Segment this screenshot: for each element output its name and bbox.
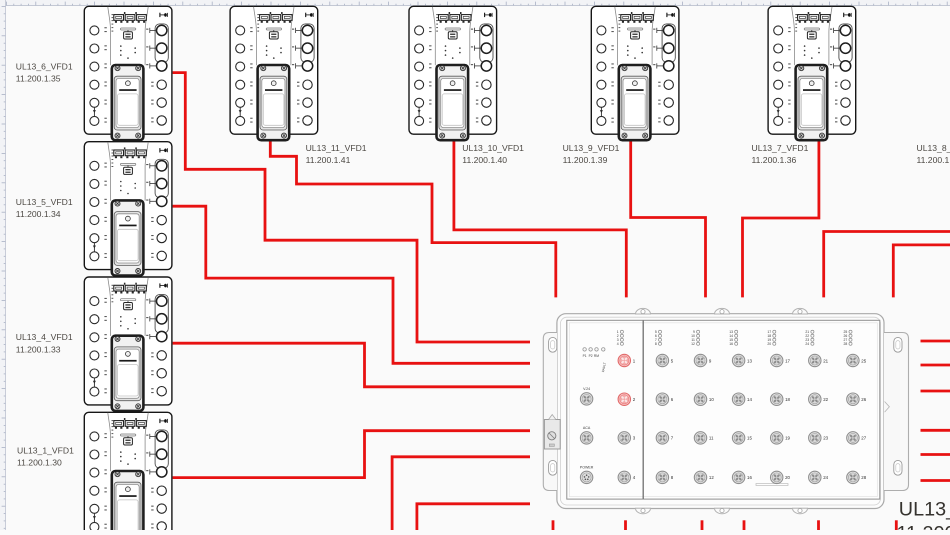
svg-text:22: 22 [823, 397, 828, 402]
svg-text:11.200.1.30: 11.200.1.30 [17, 458, 62, 468]
svg-text:ACA: ACA [583, 426, 591, 430]
svg-text:12: 12 [691, 342, 695, 346]
svg-text:11.200.1.1: 11.200.1.1 [897, 523, 950, 531]
svg-text:25: 25 [861, 358, 866, 363]
svg-text:19: 19 [785, 436, 790, 441]
svg-text:11: 11 [709, 436, 714, 441]
svg-text:27: 27 [861, 436, 866, 441]
svg-text:17: 17 [785, 358, 790, 363]
svg-text:P1: P1 [583, 354, 587, 358]
svg-text:11.200.1.36: 11.200.1.36 [752, 155, 797, 165]
svg-text:UL13_1_VFD1: UL13_1_VFD1 [17, 446, 74, 456]
svg-text:RM: RM [594, 354, 599, 358]
svg-text:UL13_5_VFD1: UL13_5_VFD1 [16, 197, 73, 207]
svg-text:20: 20 [785, 475, 790, 480]
svg-text:12: 12 [709, 475, 714, 480]
svg-text:UL13_6_VFD1: UL13_6_VFD1 [16, 62, 73, 72]
svg-text:11.200.1.35: 11.200.1.35 [16, 74, 61, 84]
svg-text:23: 23 [823, 436, 828, 441]
svg-text:4: 4 [617, 342, 619, 346]
svg-text:16: 16 [747, 475, 752, 480]
svg-text:16: 16 [729, 342, 733, 346]
svg-text:21: 21 [823, 358, 828, 363]
svg-text:13: 13 [747, 358, 752, 363]
svg-text:26: 26 [861, 397, 866, 402]
svg-text:11.200.1.40: 11.200.1.40 [462, 155, 507, 165]
svg-text:10: 10 [709, 397, 714, 402]
svg-text:24: 24 [823, 475, 828, 480]
svg-text:24: 24 [805, 342, 809, 346]
svg-text:8: 8 [655, 342, 657, 346]
svg-text:UL13_SW01: UL13_SW01 [899, 499, 950, 521]
svg-text:20: 20 [767, 342, 771, 346]
svg-text:V.24: V.24 [583, 387, 590, 391]
svg-text:11.200.1.34: 11.200.1.34 [16, 209, 61, 219]
svg-text:POWER: POWER [580, 466, 594, 470]
svg-text:15: 15 [747, 436, 752, 441]
svg-text:11.200.1.37: 11.200.1.37 [917, 155, 950, 165]
svg-text:UL13_7_VFD1: UL13_7_VFD1 [752, 143, 809, 153]
svg-text:UL13_10_VFD1: UL13_10_VFD1 [462, 143, 524, 153]
svg-text:28: 28 [861, 475, 866, 480]
svg-text:11.200.1.39: 11.200.1.39 [563, 155, 608, 165]
svg-text:UL13_9_VFD1: UL13_9_VFD1 [563, 143, 620, 153]
svg-text:18: 18 [785, 397, 790, 402]
svg-text:28: 28 [844, 342, 848, 346]
svg-text:UL13_11_VFD1: UL13_11_VFD1 [306, 143, 367, 153]
svg-text:UL13_4_VFD1: UL13_4_VFD1 [16, 332, 73, 342]
svg-text:P2: P2 [589, 354, 593, 358]
svg-text:11.200.1.41: 11.200.1.41 [306, 155, 351, 165]
svg-text:11.200.1.33: 11.200.1.33 [16, 344, 61, 354]
svg-text:14: 14 [747, 397, 752, 402]
svg-text:UL13_8_VFD1: UL13_8_VFD1 [917, 143, 950, 153]
